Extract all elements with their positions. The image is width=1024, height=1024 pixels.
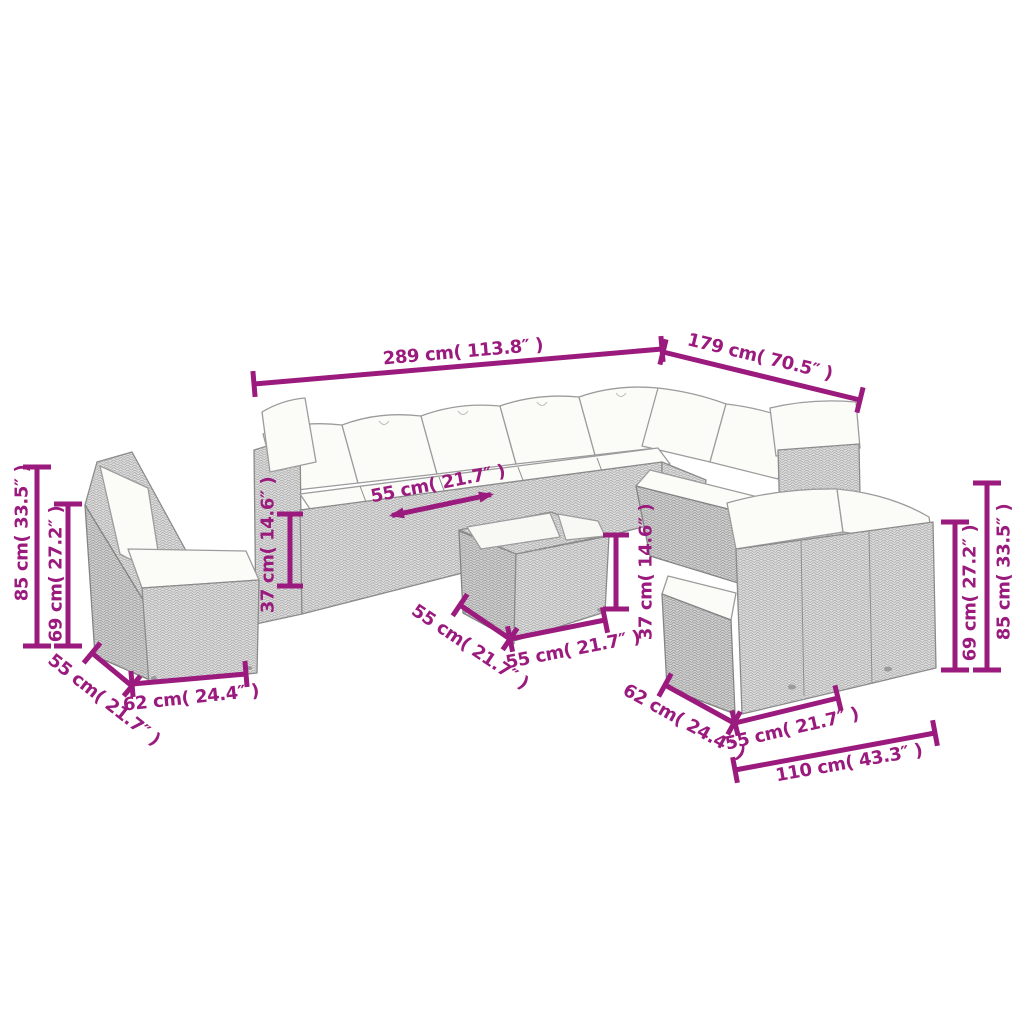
dim-line-bench-width [733, 720, 938, 783]
dim-line-bench-total-height [973, 483, 1001, 670]
product-dimension-image: 289 cm( 113.8″ ) 179 cm( 70.5″ ) 85 cm( … [0, 0, 1024, 1024]
dim-line-chair-total-height [23, 467, 51, 646]
sofa-back-cushion [500, 396, 595, 464]
sofa-back-cushion [421, 405, 516, 474]
armless-chair [85, 452, 259, 684]
furniture-line-art [0, 0, 1024, 1024]
dim-line-sofa-width [253, 336, 663, 397]
chair-base [142, 580, 259, 684]
sofa-arm-pillow [262, 398, 316, 472]
bench-bolt [884, 667, 892, 672]
dim-line-bench-back-height [941, 522, 969, 670]
bench-bolt [788, 685, 796, 690]
sofa-back-cushion [342, 415, 437, 483]
dim-line-chair-back-height [54, 504, 82, 646]
